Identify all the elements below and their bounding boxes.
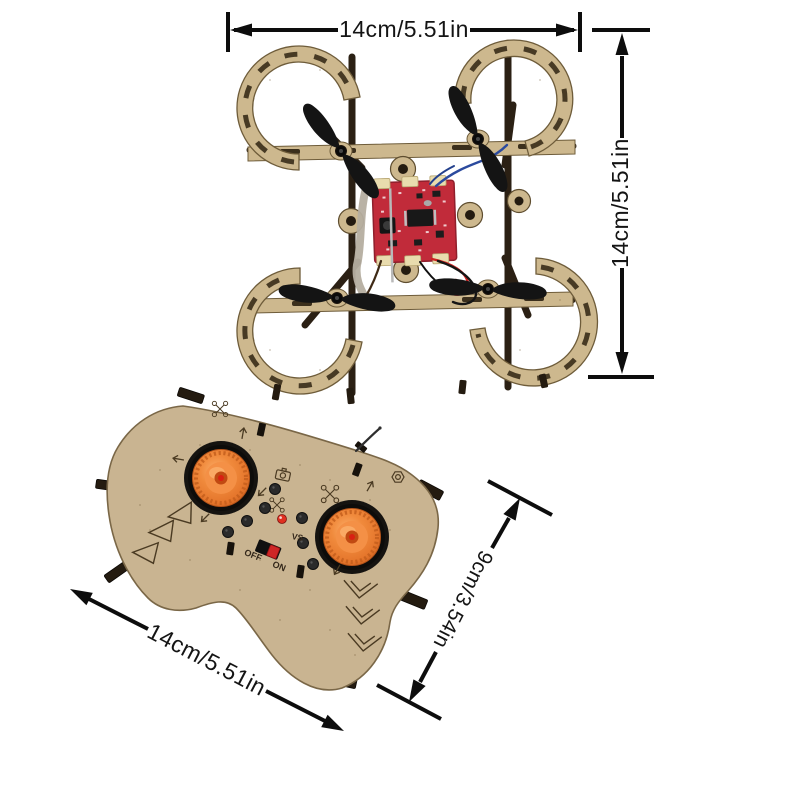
- controller-button[interactable]: [297, 513, 308, 524]
- controller-antenna: [356, 426, 382, 451]
- controller-width-label: 14cm/5.51in: [143, 618, 270, 701]
- right-joystick[interactable]: [315, 500, 389, 574]
- drone-height-label: 14cm/5.51in: [607, 138, 633, 268]
- controller-depth-label: 9cm/3.54in: [428, 547, 497, 653]
- controller-button[interactable]: [242, 516, 253, 527]
- wire-sleeve: [357, 188, 366, 297]
- left-joystick[interactable]: [184, 441, 258, 515]
- left-stick-center: [218, 475, 224, 481]
- drone-top-view: [237, 40, 598, 404]
- controller-button[interactable]: [308, 559, 319, 570]
- controller-button[interactable]: [270, 484, 281, 495]
- pcb-main-chip: [407, 209, 434, 227]
- propeller-front-right: [443, 82, 512, 195]
- vs-engraving-label: VS: [291, 531, 304, 543]
- product-illustration: OFF ON VS 14cm/5.51in 14cm/5.51in: [0, 0, 800, 800]
- guard-bottom-right: [470, 258, 597, 386]
- controller-top-view: OFF ON VS: [95, 387, 443, 690]
- product-photo: OFF ON VS 14cm/5.51in 14cm/5.51in: [0, 0, 800, 800]
- drone-width-label: 14cm/5.51in: [339, 16, 469, 42]
- right-stick-center: [349, 534, 355, 540]
- controller-button[interactable]: [260, 503, 271, 514]
- controller-button[interactable]: [223, 527, 234, 538]
- power-led: [278, 515, 287, 524]
